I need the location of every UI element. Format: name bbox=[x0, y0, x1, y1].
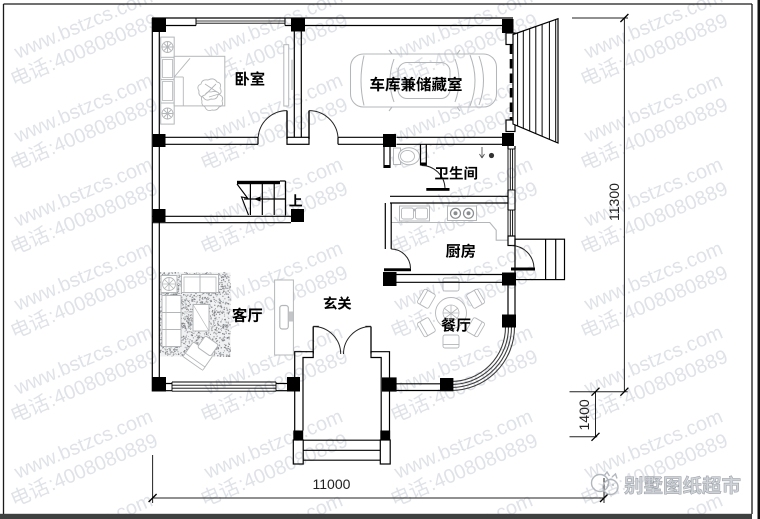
svg-text:1400: 1400 bbox=[576, 399, 592, 430]
svg-text:11300: 11300 bbox=[606, 183, 622, 221]
svg-text:11000: 11000 bbox=[313, 476, 351, 492]
